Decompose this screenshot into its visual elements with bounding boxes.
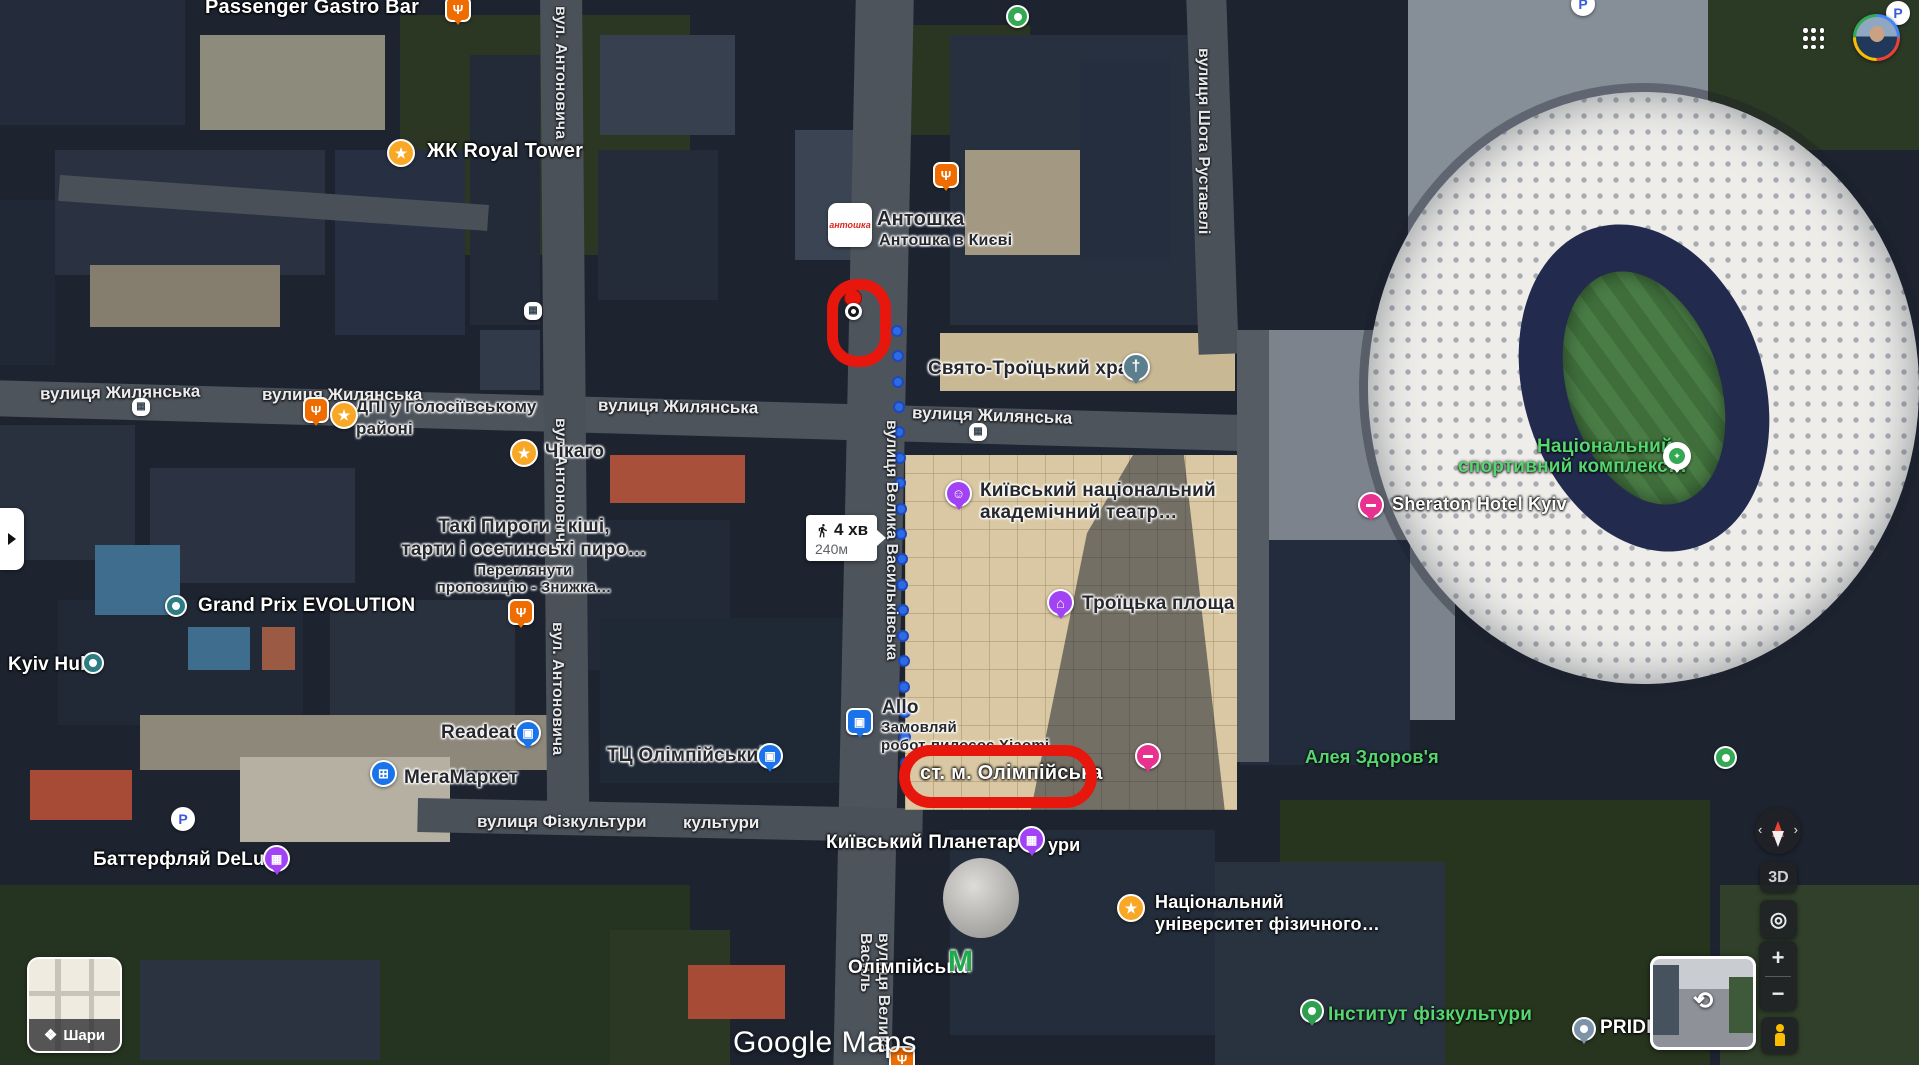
walk-time-tooltip[interactable]: 4 хв 240м	[806, 515, 877, 561]
poi-label[interactable]: Інститут фізкультури	[1328, 1004, 1532, 1026]
poi-label[interactable]: ТЦ Олімпійський	[607, 745, 770, 767]
cinema-pin[interactable]: ▦	[1018, 826, 1045, 853]
restaurant-pin[interactable]: Ψ	[933, 162, 959, 188]
star-poi-pin[interactable]: ★	[387, 139, 415, 167]
poi-label[interactable]: спортивний комплекс…	[1458, 456, 1687, 478]
poi-label[interactable]: Антошка	[877, 208, 964, 231]
restaurant-pin[interactable]: Ψ	[303, 397, 329, 423]
poi-label[interactable]: МегаМаркет	[404, 767, 518, 789]
restaurant-pin[interactable]: Ψ	[508, 599, 534, 625]
pegman-button[interactable]	[1761, 1017, 1798, 1054]
poi-label[interactable]: Свято-Троїцький храм	[928, 358, 1143, 380]
layers-button[interactable]: ❖ Шари	[27, 957, 122, 1053]
poi-label[interactable]: Троїцька площа	[1082, 593, 1235, 615]
poi-label[interactable]: університет фізичного…	[1155, 914, 1380, 935]
antoshka-store-logo[interactable]: антошка	[828, 203, 872, 247]
zoom-out-button[interactable]: −	[1759, 977, 1797, 1012]
walk-time: 4 хв	[834, 520, 868, 540]
poi-label[interactable]: Sheraton Hotel Kyiv	[1392, 494, 1567, 515]
my-location-button[interactable]: ◎	[1760, 900, 1797, 939]
poi-label[interactable]: тарти і осетинські пиро…	[401, 539, 646, 561]
parking-icon[interactable]: P	[171, 807, 195, 831]
poi-label[interactable]: академічний театр…	[980, 502, 1177, 524]
poi-dot-pin[interactable]	[165, 595, 187, 617]
layers-icon: ❖	[44, 1026, 57, 1044]
street-label: вулиця Жилянська	[598, 396, 759, 419]
street-label: вулиця Жилянська	[40, 382, 201, 405]
poi-label[interactable]: Passenger Gastro Bar	[205, 0, 419, 19]
church-pin[interactable]: †	[1122, 353, 1150, 381]
my-location-icon: ◎	[1770, 907, 1787, 932]
street-label-vertical: вулиця Шота Руставелі	[1194, 48, 1212, 276]
star-poi-pin[interactable]: ★	[510, 439, 538, 467]
green-poi-pin[interactable]	[1714, 746, 1737, 769]
route-dot	[892, 376, 904, 388]
restaurant-pin[interactable]: Ψ	[445, 0, 471, 22]
shopping-pin[interactable]: ▣	[757, 743, 783, 769]
poi-label[interactable]: Замовляй	[881, 719, 957, 736]
rotate-left-icon: ‹	[1758, 822, 1762, 837]
landmark-pin[interactable]: ⌂	[1047, 589, 1074, 616]
street-label: культури	[683, 813, 759, 833]
institute-pin[interactable]	[1300, 999, 1324, 1023]
poi-label[interactable]: ури	[1048, 835, 1080, 856]
poi-label[interactable]: Київський національний	[980, 480, 1216, 502]
walking-person-icon	[815, 523, 830, 538]
poi-label[interactable]: районі	[356, 419, 413, 439]
sports-complex-pin[interactable]: ✦	[1663, 442, 1691, 470]
route-dot	[893, 401, 905, 413]
walk-distance: 240м	[815, 541, 868, 557]
3d-toggle-button[interactable]: 3D	[1760, 862, 1797, 893]
compass-control[interactable]: ‹ ›	[1755, 808, 1801, 854]
star-poi-pin[interactable]: ★	[330, 401, 358, 429]
poi-label[interactable]: ДПІ у Голосіївському	[356, 397, 537, 417]
poi-label[interactable]: Переглянути	[475, 562, 572, 579]
street-label: вулиця Фізкультури	[477, 812, 647, 832]
route-dot	[892, 350, 904, 362]
pegman-icon	[1776, 1024, 1784, 1032]
red-annotation-oval	[899, 745, 1097, 808]
cinema-pin[interactable]: ▦	[263, 845, 290, 872]
poi-label[interactable]: Kyiv Hub	[8, 654, 92, 676]
hotel-pin[interactable]: ▬	[1358, 492, 1384, 518]
green-poi-pin[interactable]	[1006, 5, 1029, 28]
route-dot	[891, 325, 903, 337]
star-poi-pin[interactable]: ★	[1117, 894, 1145, 922]
poi-label[interactable]: Національний	[1537, 436, 1673, 458]
google-maps-satellite-view: вулиця Жилянськавулиця Жилянськавулиця Ж…	[0, 0, 1919, 1065]
shopping-pin[interactable]: ▣	[515, 720, 541, 746]
poi-label[interactable]: ЖК Royal Tower	[427, 140, 583, 163]
poi-label[interactable]: Антошка в Києві	[879, 232, 1012, 250]
poi-label[interactable]: Чікаго	[545, 441, 604, 463]
street-label-vertical: вул. Антоновича	[548, 622, 566, 774]
theater-pin[interactable]: ☺	[945, 480, 972, 507]
hotel-pin[interactable]: ▬	[1135, 743, 1161, 769]
metro-m-icon[interactable]: M	[948, 947, 973, 977]
red-annotation-rounded-rect	[827, 279, 891, 367]
street-label-vertical: вул. Антоновича	[551, 6, 569, 158]
rotate-view-icon: ⟲	[1693, 987, 1713, 1016]
streetview-preview[interactable]: ⟲	[1650, 956, 1756, 1050]
transit-stop-icon[interactable]: ▦	[524, 302, 542, 320]
supermarket-pin[interactable]: ⊞	[370, 760, 397, 787]
zoom-in-button[interactable]: +	[1759, 941, 1797, 976]
shopping-pin[interactable]: ▣	[846, 708, 873, 735]
zoom-control: + −	[1759, 941, 1797, 1011]
planetarium-dome	[943, 858, 1019, 938]
poi-label[interactable]: Алея Здоров'я	[1305, 747, 1439, 768]
rotate-right-icon: ›	[1794, 822, 1798, 837]
poi-label[interactable]: Баттерфляй DeLuxe	[93, 849, 286, 871]
transit-stop-icon[interactable]: ▦	[969, 423, 987, 441]
side-panel-toggle[interactable]	[0, 508, 24, 570]
poi-label[interactable]: пропозицію - Знижка…	[437, 579, 612, 596]
google-maps-logo: Google Maps	[733, 1026, 917, 1060]
google-apps-grid-icon[interactable]	[1803, 28, 1825, 50]
poi-dot-pin[interactable]	[82, 652, 104, 674]
user-avatar[interactable]	[1853, 14, 1900, 61]
layers-label: Шари	[63, 1027, 105, 1044]
olimpiyskiy-stadium	[1368, 92, 1919, 684]
poi-label[interactable]: Такі Пироги - кіші,	[438, 516, 610, 538]
chevron-right-icon	[8, 533, 22, 545]
poi-label[interactable]: Національний	[1155, 892, 1284, 913]
poi-label[interactable]: Readeat	[441, 722, 516, 744]
pride-pin[interactable]	[1572, 1017, 1596, 1041]
poi-label[interactable]: Allo	[882, 697, 919, 719]
poi-label[interactable]: Київський Планетарій	[826, 832, 1037, 854]
antoshka-logo-text: антошка	[829, 220, 871, 230]
transit-stop-icon[interactable]: ▦	[132, 398, 150, 416]
poi-label[interactable]: Grand Prix EVOLUTION	[198, 595, 415, 617]
